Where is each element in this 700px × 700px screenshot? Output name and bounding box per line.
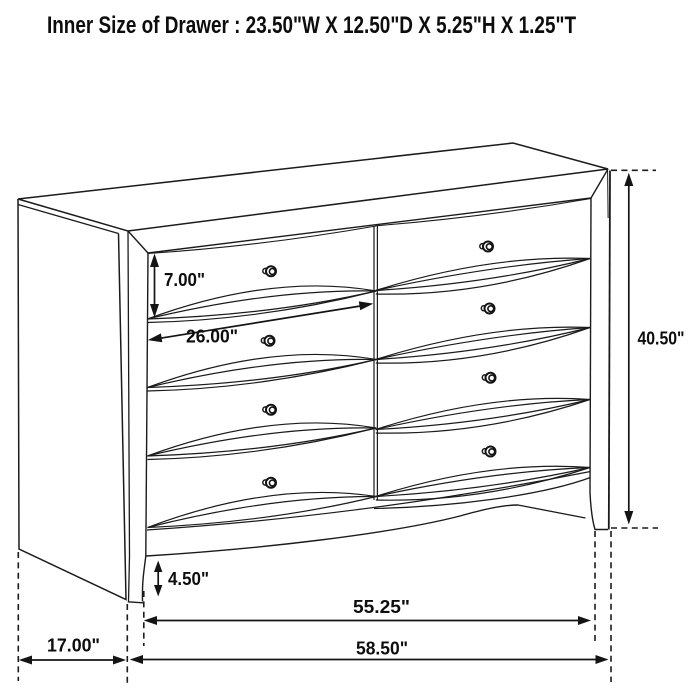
svg-text:55.25": 55.25" <box>353 596 410 617</box>
svg-text:17.00": 17.00" <box>47 635 100 656</box>
svg-text:26.00": 26.00" <box>186 326 238 347</box>
svg-text:4.50": 4.50" <box>168 568 209 589</box>
svg-text:40.50": 40.50" <box>638 328 685 349</box>
svg-text:7.00": 7.00" <box>164 269 205 290</box>
svg-text:Inner Size of Drawer : 23.50"W: Inner Size of Drawer : 23.50"W X 12.50"D… <box>47 12 576 39</box>
svg-text:58.50": 58.50" <box>356 638 408 659</box>
